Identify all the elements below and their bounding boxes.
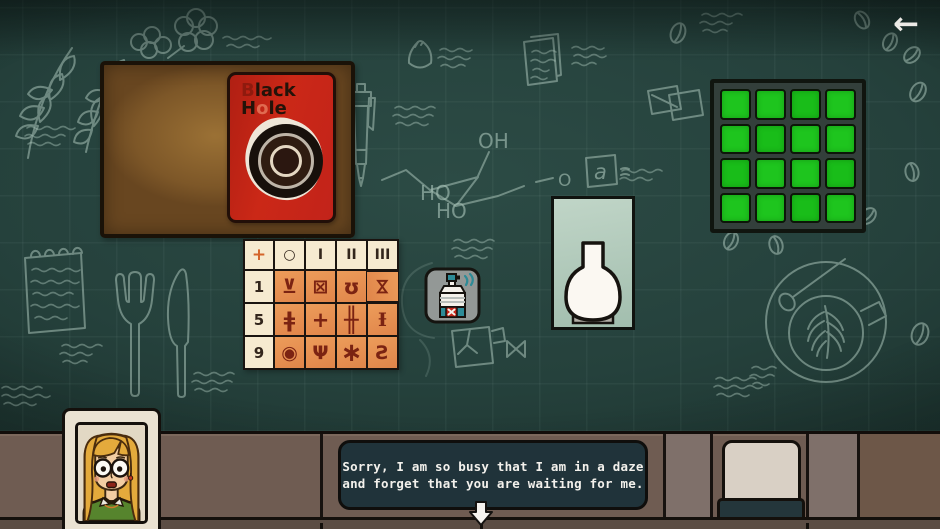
card-title-line-2: Hole [241,100,296,118]
table-row-label: 1 [245,271,273,302]
table-header-cell: ○ [275,241,304,269]
grid-cell[interactable] [790,89,821,120]
counter-panel [860,434,940,517]
grid-cell[interactable] [825,89,856,120]
symbol-cell: + [306,304,335,335]
grid-cell[interactable] [825,158,856,189]
counter-panel [666,434,710,517]
table-header-cell: II [337,241,366,269]
counter-seam [663,434,666,517]
symbol-cell: ◉ [275,337,304,368]
symbol-cell: ⊠ [306,271,335,302]
dialogue-line: and forget that you are waiting for me. [342,476,643,491]
symbol-cell: Ɨ [368,304,397,335]
grid-cell[interactable] [720,124,751,155]
table-header-cell: I [306,241,335,269]
black-hole-ring [258,133,314,189]
vase [554,199,632,327]
grid-cell[interactable] [825,124,856,155]
svg-text:O: O [558,171,571,191]
grid-cell[interactable] [790,124,821,155]
menu-board[interactable]: Black Hole [100,61,355,238]
earring [129,476,133,480]
table-row-label: 5 [245,304,273,335]
green-grid-panel[interactable] [710,79,866,233]
continue-arrow-icon[interactable] [467,500,495,528]
dialogue-line: Sorry, I am so busy that I am in a daze [342,459,643,474]
papers-doodle [524,34,561,85]
counter-seam [320,434,323,517]
table-corner-cell: + [245,241,273,269]
counter-seam [857,434,860,517]
latte-cup-doodle [766,259,886,382]
stool-back [722,440,801,506]
symbol-cell: ʊ [337,271,366,302]
game-screen: OH HO HO O a ← Black Hole [0,0,940,529]
grid-cell[interactable] [755,89,786,120]
table-header-cell: III [368,241,397,269]
portrait-frame[interactable] [62,408,161,529]
fork-doodle [116,272,154,396]
character-avatar [78,425,145,521]
spray-can-icon [424,267,481,324]
spray-item[interactable] [424,267,481,324]
symbol-cell: ǂ [275,304,304,335]
flower-doodle [168,9,217,58]
svg-text:OH: OH [478,129,509,153]
portrait-photo [75,422,148,524]
symbol-cell: ⋈ [367,272,398,301]
kickboard-seam [806,523,809,529]
symbol-cell: ∗ [337,337,366,368]
black-hole-card[interactable]: Black Hole [227,72,336,223]
crackers-doodle [648,86,703,120]
symbol-table[interactable]: + ○ I II III 1 ⊻ ⊠ ʊ ⋈ 5 ǂ + ╫ Ɨ 9 ◉ Ψ ∗… [243,239,399,370]
symbol-cell: ⊻ [275,271,304,302]
grid-cell[interactable] [720,89,751,120]
symbol-cell: Ψ [306,337,335,368]
cracked-square-doodle [452,327,525,367]
svg-text:HO: HO [436,199,467,223]
counter-panel [809,434,857,517]
arrow-left-icon: ← [893,6,919,42]
card-title: Black Hole [241,82,296,118]
grid-cell[interactable] [755,124,786,155]
kickboard-seam [320,523,323,529]
grid-cell[interactable] [755,193,786,224]
bun-doodle [409,41,431,68]
black-hole-illustration [249,124,323,198]
vase-panel[interactable] [551,196,635,330]
black-hole-core [270,145,302,177]
grid-cell[interactable] [790,158,821,189]
counter-seam [806,434,809,517]
back-button[interactable]: ← [880,4,932,42]
notepad-doodle [25,248,85,333]
counter-seam [710,434,713,517]
berries-doodle [131,27,171,58]
svg-text:a: a [594,160,607,184]
grid-cell[interactable] [825,193,856,224]
grid-cell[interactable] [755,158,786,189]
grid-cell[interactable] [720,193,751,224]
symbol-cell: ╫ [337,304,366,335]
knife-doodle [168,269,189,397]
grid-cell[interactable] [790,193,821,224]
grid-cell[interactable] [720,158,751,189]
table-row-label: 9 [245,337,273,368]
symbol-cell: Ƨ [368,337,397,368]
